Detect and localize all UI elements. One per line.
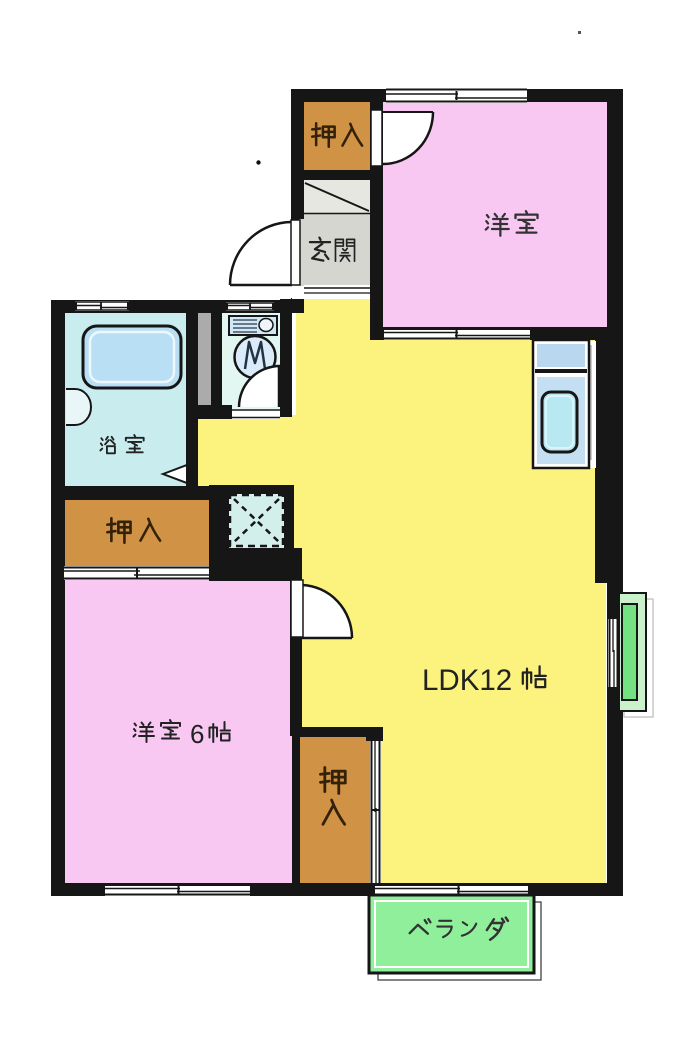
svg-text:6: 6: [190, 719, 204, 749]
svg-text:LDK12: LDK12: [422, 664, 512, 697]
